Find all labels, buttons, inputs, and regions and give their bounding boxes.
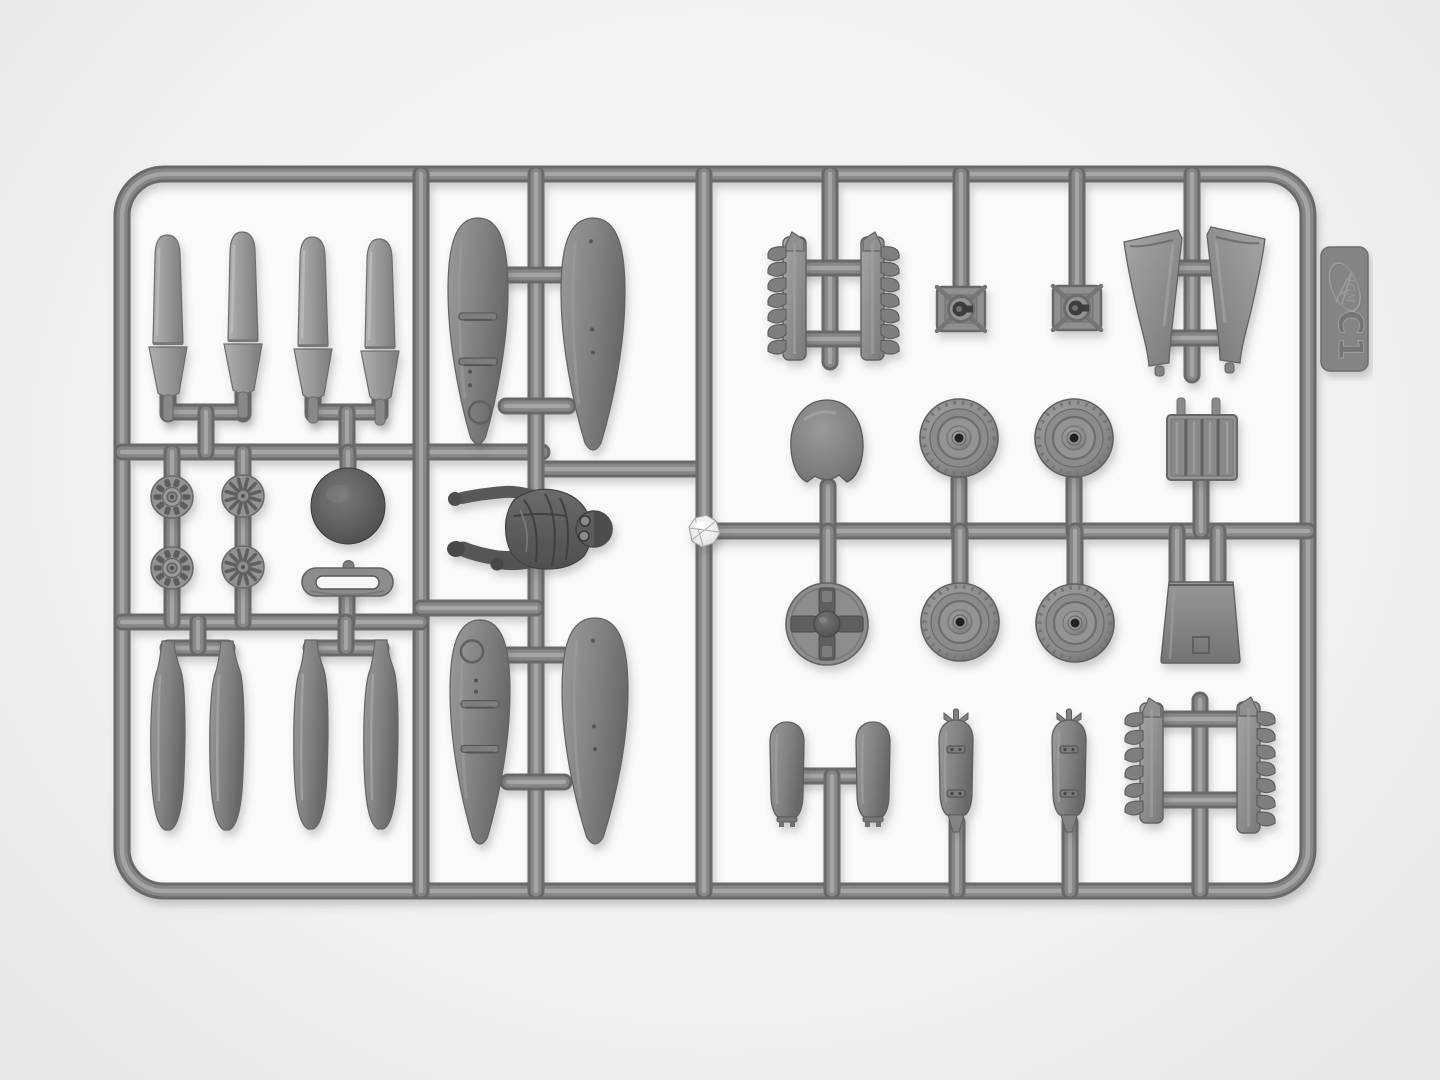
engine-front-2 (151, 547, 193, 589)
spinner-dome (311, 468, 385, 544)
exhaust-stack-top-left (768, 232, 806, 360)
wheel-1 (920, 399, 998, 477)
exhaust-stack-bottom-left (1125, 698, 1163, 823)
wheel-2 (1035, 399, 1113, 477)
wheel-4 (1036, 584, 1114, 662)
cowling-dome (791, 400, 863, 482)
exhaust-stack-top-right (861, 232, 899, 360)
sprue-scene: ICM C1 (0, 0, 1440, 1080)
sprue-photo: ICM C1 (0, 0, 1440, 1080)
hub-cross-disc (786, 583, 868, 665)
bomb-half-2 (856, 722, 890, 827)
brand-text: ICM (1343, 278, 1357, 303)
sprue-id-tab: ICM C1 (1321, 247, 1370, 371)
mount-square-1 (937, 287, 985, 331)
radiator-box (1161, 582, 1240, 663)
sprue-code-label: C1 (1330, 310, 1370, 363)
bomb-half-1 (770, 722, 804, 827)
engine-front-1 (151, 476, 193, 518)
engine-front-4 (222, 546, 264, 588)
engine-front-3 (222, 475, 264, 517)
wheel-3 (921, 583, 999, 661)
mount-square-2 (1053, 286, 1101, 330)
exhaust-stack-bottom-right (1237, 697, 1275, 833)
